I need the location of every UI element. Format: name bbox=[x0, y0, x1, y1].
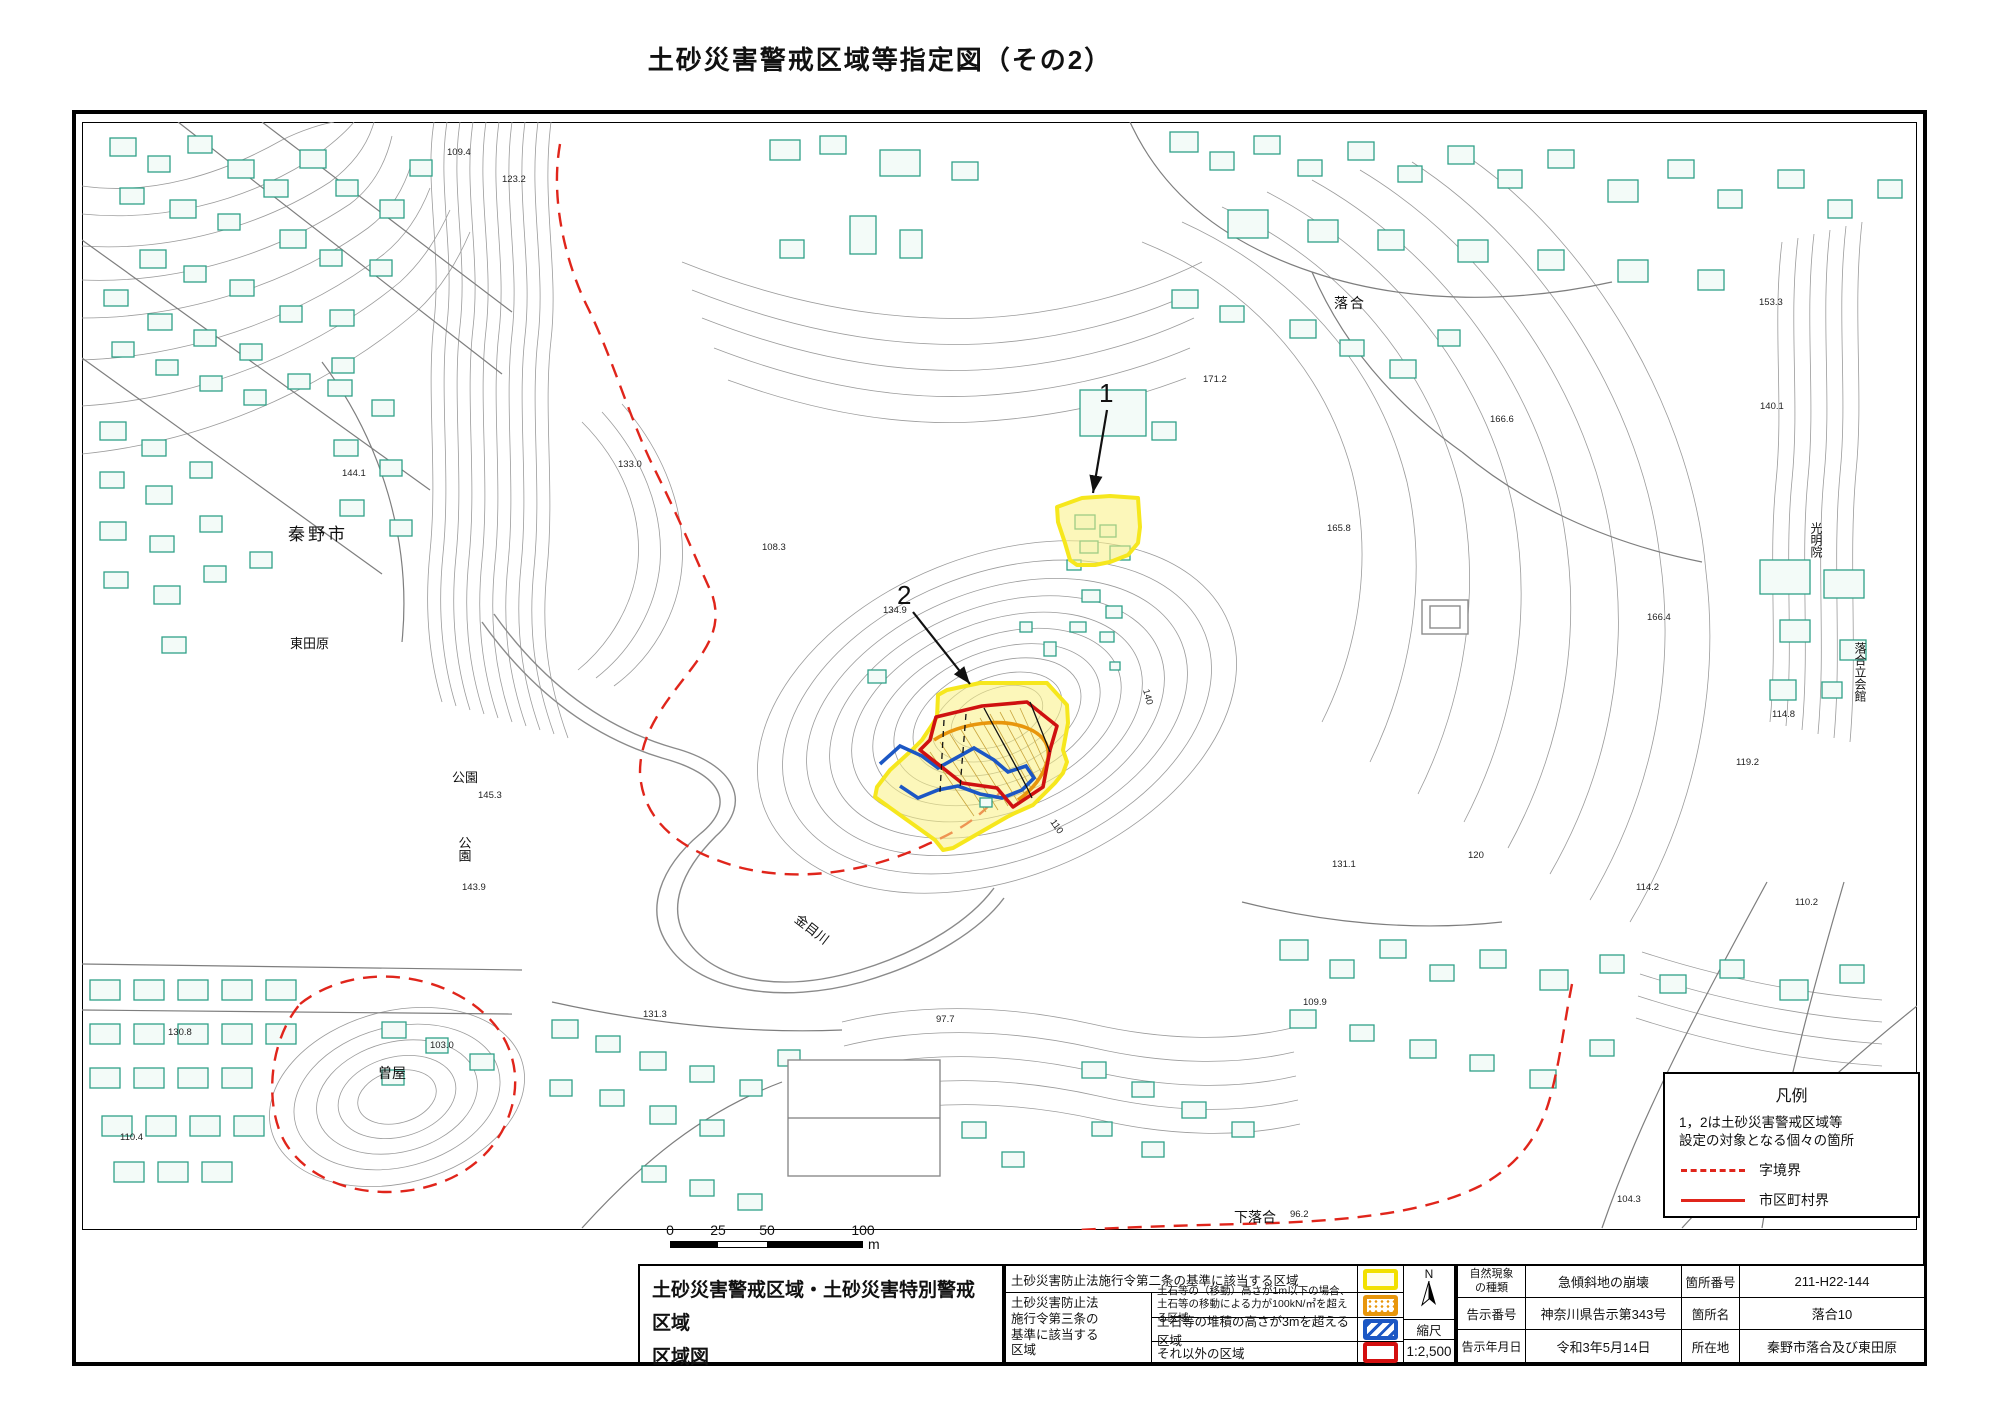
label-shimo-ochiai: 下落合 bbox=[1234, 1209, 1276, 1225]
elevation-label: 140.1 bbox=[1760, 401, 1784, 412]
map-sheet: 土砂災害警戒区域等指定図（その2） bbox=[0, 0, 2000, 1414]
solid-line-sample bbox=[1681, 1199, 1745, 1202]
elevation-label: 153.3 bbox=[1759, 297, 1783, 308]
notice-no-value-cell: 神奈川県告示第343号 bbox=[1526, 1298, 1682, 1330]
yellow-zone-swatch bbox=[1363, 1269, 1398, 1290]
solid-line-label: 市区町村界 bbox=[1759, 1190, 1829, 1210]
site-name-label-cell: 箇所名 bbox=[1682, 1298, 1740, 1330]
label-higashi-tawara: 東田原 bbox=[290, 636, 329, 651]
notice-date-label-cell: 告示年月日 bbox=[1458, 1330, 1526, 1362]
elevation-label: 104.3 bbox=[1617, 1194, 1641, 1205]
legend-group-label: 土砂災害防止法 施行令第三条の 基準に該当する 区域 bbox=[1006, 1293, 1152, 1362]
label-kaname-river: 金目川 bbox=[792, 911, 832, 947]
site-no-label-cell: 箇所番号 bbox=[1682, 1266, 1740, 1298]
elevation-label: 134.9 bbox=[883, 605, 907, 616]
designation-info-table: 自然現象 の種類 急傾斜地の崩壊 箇所番号 211-H22-144 告示番号 神… bbox=[1456, 1264, 1926, 1364]
zone-1-number: 1 bbox=[1099, 378, 1113, 408]
label-ochiai: 落合 bbox=[1334, 295, 1366, 311]
swatch-cell-blue bbox=[1358, 1318, 1404, 1342]
site-no-value-cell: 211-H22-144 bbox=[1740, 1266, 1924, 1298]
scale-tick-50: 50 bbox=[759, 1222, 775, 1238]
scale-bar: 0 25 50 100 m bbox=[650, 1222, 890, 1258]
legend-row4-text: それ以外の区域 bbox=[1152, 1342, 1358, 1362]
compass-cell: N bbox=[1404, 1266, 1454, 1320]
elevation-label: 131.1 bbox=[1332, 859, 1356, 870]
elevation-label: 96.2 bbox=[1290, 1209, 1309, 1220]
scale-bar-segments bbox=[670, 1241, 863, 1248]
scale-tick-25: 25 bbox=[710, 1222, 726, 1238]
nature-value-cell: 急傾斜地の崩壊 bbox=[1526, 1266, 1682, 1298]
elevation-label: 119.2 bbox=[1736, 757, 1759, 768]
elevation-label: 110.2 bbox=[1795, 897, 1818, 908]
elevation-label: 109.4 bbox=[447, 147, 471, 158]
elevation-label: 103.0 bbox=[430, 1040, 454, 1051]
elevation-label: 120 bbox=[1468, 850, 1484, 861]
legend-note: 1，2は土砂災害警戒区域等 設定の対象となる個々の箇所 bbox=[1679, 1114, 1918, 1150]
elevation-label: 166.6 bbox=[1490, 414, 1514, 425]
orange-zone-swatch bbox=[1363, 1295, 1398, 1316]
elevation-label: 114.8 bbox=[1772, 709, 1795, 720]
sheet-title-cell: 土砂災害警戒区域・土砂災害特別警戒区域 区域図 bbox=[638, 1264, 1004, 1364]
elevation-label: 130.8 bbox=[168, 1027, 192, 1038]
nature-label-cell: 自然現象 の種類 bbox=[1458, 1266, 1526, 1298]
elevation-label: 144.1 bbox=[342, 468, 366, 479]
elevation-label: 109.9 bbox=[1303, 997, 1327, 1008]
elevation-label: 145.3 bbox=[478, 790, 502, 801]
scale-tick-0: 0 bbox=[666, 1222, 674, 1238]
elevation-label: 133.0 bbox=[618, 459, 642, 470]
label-hadano-city: 秦野市 bbox=[288, 525, 348, 544]
elevation-label: 171.2 bbox=[1203, 374, 1227, 385]
blue-zone-swatch bbox=[1363, 1319, 1398, 1340]
north-arrow-icon bbox=[1421, 1281, 1437, 1307]
map-legend-box: 凡例 1，2は土砂災害警戒区域等 設定の対象となる個々の箇所 字境界 市区町村界 bbox=[1663, 1072, 1920, 1218]
scale-value-cell: 1:2,500 bbox=[1404, 1340, 1454, 1362]
page-title: 土砂災害警戒区域等指定図（その2） bbox=[560, 40, 1200, 77]
label-komyoin: 光明院 bbox=[1809, 522, 1823, 558]
label-soya: 曽屋 bbox=[378, 1065, 406, 1081]
zone-legend-table: 土砂災害防止法施行令第二条の基準に該当する区域 土砂災害防止法 施行令第三条の … bbox=[1004, 1264, 1456, 1364]
legend-title: 凡例 bbox=[1665, 1082, 1918, 1106]
label-park-1: 公園 bbox=[452, 770, 478, 785]
north-label: N bbox=[1425, 1267, 1434, 1281]
roads-group bbox=[82, 122, 1917, 1228]
dashed-line-sample bbox=[1681, 1169, 1745, 1172]
location-label-cell: 所在地 bbox=[1682, 1330, 1740, 1362]
elevation-label: 131.3 bbox=[643, 1009, 667, 1020]
hazard-zone-2 bbox=[875, 683, 1068, 850]
location-value-cell: 秦野市落合及び東田原 bbox=[1740, 1330, 1924, 1362]
elevation-label: 108.3 bbox=[762, 542, 786, 553]
label-ochiai-hall: 落合立会館 bbox=[1853, 642, 1867, 702]
notice-date-value-cell: 令和3年5月14日 bbox=[1526, 1330, 1682, 1362]
legend-row3-text: 土石等の堆積の高さが3mを超える区域 bbox=[1152, 1318, 1358, 1342]
contour-label: 110 bbox=[1048, 817, 1066, 836]
elevation-label: 165.8 bbox=[1327, 523, 1351, 534]
place-labels-group: 秦野市 東田原 公園 公園 曽屋 金目川 下落合 落合 光明院 落合立会館 bbox=[288, 295, 1867, 1225]
elevation-label: 123.2 bbox=[502, 174, 526, 185]
swatch-cell-red bbox=[1358, 1342, 1404, 1362]
scale-unit: m bbox=[868, 1236, 880, 1252]
elevation-label: 110.4 bbox=[120, 1132, 143, 1143]
hazard-zone-1 bbox=[1057, 496, 1140, 565]
label-park-2: 公園 bbox=[457, 836, 472, 862]
swatch-cell-orange bbox=[1358, 1293, 1404, 1318]
red-zone-swatch bbox=[1363, 1342, 1398, 1363]
buildings-group bbox=[90, 132, 1902, 1210]
swatch-cell-yellow bbox=[1358, 1266, 1404, 1293]
contour-label: 140 bbox=[1140, 688, 1155, 706]
scale-label-cell: 縮尺 bbox=[1404, 1320, 1454, 1340]
site-name-value-cell: 落合10 bbox=[1740, 1298, 1924, 1330]
elevation-label: 143.9 bbox=[462, 882, 486, 893]
elevation-label: 166.4 bbox=[1647, 612, 1671, 623]
elevation-label: 114.2 bbox=[1636, 882, 1659, 893]
dashed-line-label: 字境界 bbox=[1759, 1160, 1801, 1180]
elevation-label: 97.7 bbox=[936, 1014, 955, 1025]
zone-2-arrow: 2 bbox=[897, 580, 970, 684]
map-canvas: 1 2 秦野市 東田原 公園 公園 曽屋 金目川 下落合 落合 光明院 落合立会… bbox=[82, 122, 1917, 1230]
notice-no-label-cell: 告示番号 bbox=[1458, 1298, 1526, 1330]
